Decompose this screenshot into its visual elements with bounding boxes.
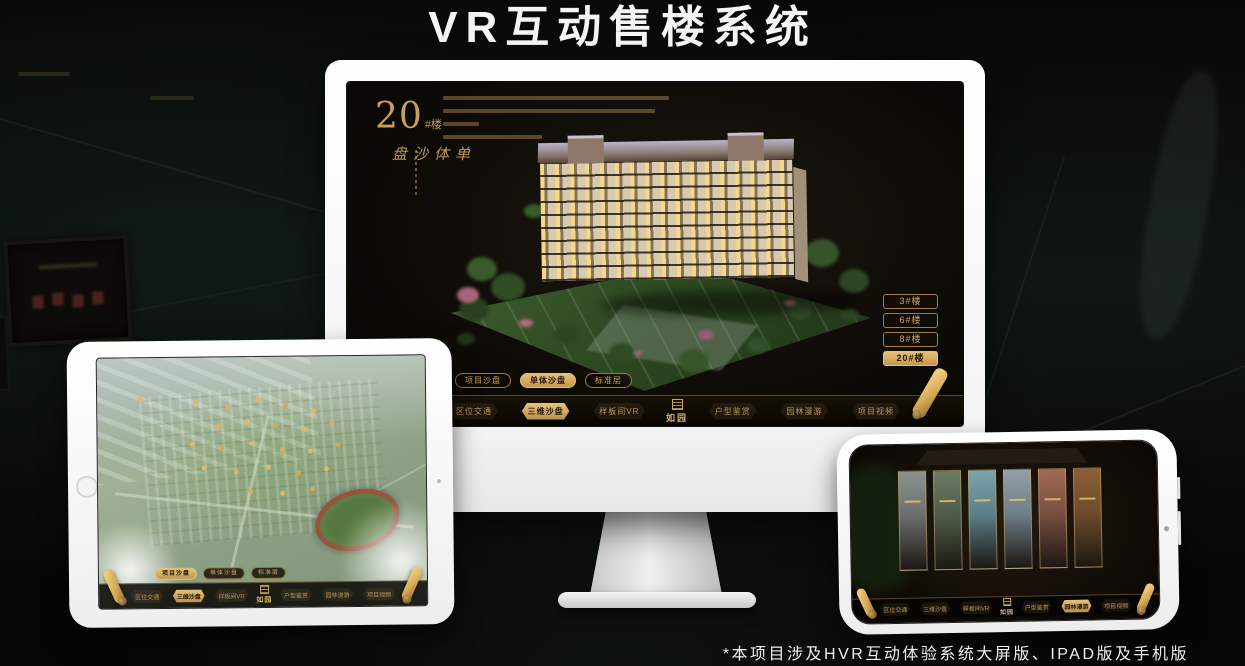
nav-item-garden-roam[interactable]: 园林漫游	[777, 403, 831, 420]
panorama-panel[interactable]	[898, 470, 928, 570]
view-tab-group: 项目沙盘 单体沙盘 标准层	[455, 373, 632, 388]
nav-item-garden-roam[interactable]: 园林漫游	[319, 588, 355, 601]
building-roof-tower	[568, 135, 604, 164]
residential-building-model	[538, 139, 797, 293]
tablet-screen: 项目沙盘 单体沙盘 标准层 区位交通 三维沙盘 样板间VR 如园 户型鉴赏 园林…	[97, 355, 428, 608]
brand-seal-icon	[1003, 598, 1011, 606]
nav-item-location-traffic[interactable]: 区位交通	[878, 602, 912, 616]
brand-logo: 如园	[256, 585, 272, 605]
tab-single-sandtable[interactable]: 单体沙盘	[203, 567, 245, 579]
monitor-stand-base	[558, 592, 756, 608]
phone-side-button	[1178, 511, 1182, 545]
main-navbar: 区位交通 三维沙盘 样板间VR 如园 户型鉴赏 园林漫游 项目视频	[852, 593, 1159, 619]
brand-logo-text: 如园	[1000, 607, 1014, 616]
phone-device: 区位交通 三维沙盘 样板间VR 如园 户型鉴赏 园林漫游 项目视频	[836, 429, 1179, 635]
monitor-stand-neck	[590, 511, 722, 595]
tab-standard-floor[interactable]: 标准层	[585, 373, 632, 388]
phone-side-button	[1177, 477, 1180, 499]
building-subtitle-english-decor	[415, 150, 417, 198]
nav-item-showroom-vr[interactable]: 样板间VR	[212, 589, 250, 602]
nav-item-3d-sandtable[interactable]: 三维沙盘	[918, 601, 952, 615]
brand-logo-text: 如园	[256, 595, 272, 605]
floor-button-20[interactable]: 20#楼	[883, 351, 938, 366]
floor-button-3[interactable]: 3#楼	[883, 294, 938, 309]
nav-item-location-traffic[interactable]: 区位交通	[447, 403, 501, 420]
nav-item-showroom-vr[interactable]: 样板间VR	[590, 403, 648, 420]
background-map-label	[18, 72, 70, 76]
brand-logo: 如园	[1000, 598, 1014, 616]
brand-seal-icon	[672, 399, 683, 410]
poster-canvas: VR互动售楼系统 20#楼 单体沙盘	[0, 0, 1245, 666]
brand-logo: 如园	[666, 399, 688, 424]
main-navbar: 区位交通 三维沙盘 样板间VR 如园 户型鉴赏 园林漫游 项目视频	[99, 580, 427, 608]
home-button[interactable]	[76, 476, 98, 498]
tablet-device: 项目沙盘 单体沙盘 标准层 区位交通 三维沙盘 样板间VR 如园 户型鉴赏 园林…	[67, 338, 455, 628]
building-3d-sandtable[interactable]	[447, 137, 877, 405]
nav-item-garden-roam[interactable]: 园林漫游	[1059, 599, 1093, 613]
sandtable-trees	[467, 257, 497, 281]
building-side-wall	[793, 167, 808, 282]
nav-item-location-traffic[interactable]: 区位交通	[129, 590, 165, 603]
interior-pergola-beam	[916, 448, 1088, 466]
nav-item-project-video[interactable]: 项目视频	[361, 587, 397, 600]
building-number-suffix: #楼	[425, 119, 442, 131]
background-plaque	[3, 235, 132, 347]
view-tab-group: 项目沙盘 单体沙盘 标准层	[155, 567, 286, 580]
brand-seal-icon	[260, 585, 269, 594]
background-map-label	[150, 96, 194, 100]
nav-item-unit-gallery[interactable]: 户型鉴赏	[706, 403, 760, 420]
panorama-panel[interactable]	[1038, 468, 1068, 568]
building-roof-tower	[728, 132, 764, 161]
nav-item-showroom-vr[interactable]: 样板间VR	[958, 601, 995, 615]
panorama-panel[interactable]	[1003, 469, 1033, 569]
footnote-text: *本项目涉及HVR互动体验系统大屏版、IPAD版及手机版	[723, 640, 1189, 664]
brand-logo-text: 如园	[666, 411, 688, 424]
page-title: VR互动售楼系统	[0, 0, 1245, 56]
nav-item-project-video[interactable]: 项目视频	[849, 403, 903, 420]
building-number: 20	[375, 96, 423, 137]
panorama-panel[interactable]	[1073, 467, 1103, 567]
front-camera-icon	[437, 479, 441, 483]
tab-single-sandtable[interactable]: 单体沙盘	[520, 373, 576, 388]
floor-button-6[interactable]: 6#楼	[883, 313, 938, 328]
nav-item-unit-gallery[interactable]: 户型鉴赏	[278, 588, 314, 601]
nav-item-3d-sandtable[interactable]: 三维沙盘	[171, 589, 207, 602]
tab-project-sandtable[interactable]: 项目沙盘	[155, 568, 197, 580]
floor-button-group: 3#楼 6#楼 8#楼 20#楼	[883, 294, 938, 370]
building-hero-block: 20#楼 单体沙盘	[375, 98, 442, 136]
panorama-panel-strip	[898, 467, 1103, 571]
front-camera-icon	[1164, 526, 1169, 531]
building-facade-windows	[540, 159, 794, 281]
tab-standard-floor[interactable]: 标准层	[251, 567, 286, 579]
building-number-badges[interactable]	[137, 396, 142, 401]
floor-button-8[interactable]: 8#楼	[883, 332, 938, 347]
nav-item-unit-gallery[interactable]: 户型鉴赏	[1020, 600, 1054, 614]
nav-item-project-video[interactable]: 项目视频	[1099, 598, 1133, 612]
tab-project-sandtable[interactable]: 项目沙盘	[455, 373, 511, 388]
nav-item-3d-sandtable[interactable]: 三维沙盘	[519, 403, 573, 420]
panorama-panel[interactable]	[933, 470, 963, 570]
sandtable-flower-trees	[457, 287, 479, 303]
phone-screen: 区位交通 三维沙盘 样板间VR 如园 户型鉴赏 园林漫游 项目视频	[849, 440, 1159, 623]
panorama-panel[interactable]	[968, 469, 998, 569]
